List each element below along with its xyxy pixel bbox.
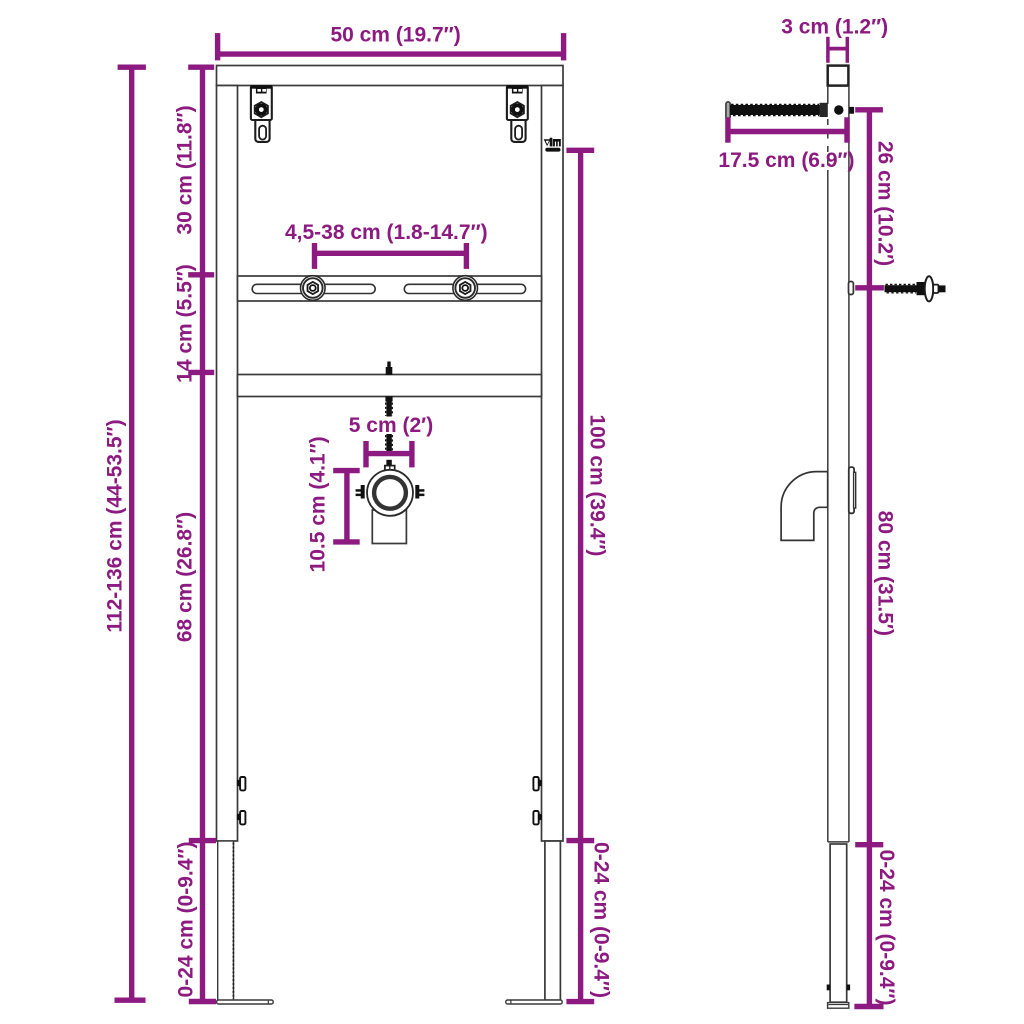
svg-text:17.5 cm (6.9″): 17.5 cm (6.9″) xyxy=(718,149,854,172)
svg-text:30 cm (11.8″): 30 cm (11.8″) xyxy=(174,105,197,234)
svg-text:0-24 cm (0-9.4″): 0-24 cm (0-9.4″) xyxy=(875,850,898,1006)
svg-text:80 cm (31.5′): 80 cm (31.5′) xyxy=(873,511,896,636)
svg-text:26 cm (10.2′): 26 cm (10.2′) xyxy=(873,141,896,266)
svg-text:0-24 cm (0-9.4″): 0-24 cm (0-9.4″) xyxy=(589,842,612,998)
svg-text:10.5 cm (4.1″): 10.5 cm (4.1″) xyxy=(307,436,330,572)
svg-text:68 cm (26.8″): 68 cm (26.8″) xyxy=(173,512,196,642)
svg-text:0-24 cm (0-9.4″): 0-24 cm (0-9.4″) xyxy=(175,842,198,998)
svg-text:50 cm (19.7″): 50 cm (19.7″) xyxy=(330,24,460,47)
svg-text:112-136 cm (44-53.5″): 112-136 cm (44-53.5″) xyxy=(104,419,127,632)
svg-text:4,5-38 cm (1.8-14.7″): 4,5-38 cm (1.8-14.7″) xyxy=(285,221,488,244)
svg-text:3 cm (1.2″): 3 cm (1.2″) xyxy=(781,16,888,39)
svg-text:5 cm (2′): 5 cm (2′) xyxy=(349,414,433,437)
svg-text:14 cm (5.5″): 14 cm (5.5″) xyxy=(174,264,197,383)
svg-text:100 cm (39.4″): 100 cm (39.4″) xyxy=(586,414,609,556)
